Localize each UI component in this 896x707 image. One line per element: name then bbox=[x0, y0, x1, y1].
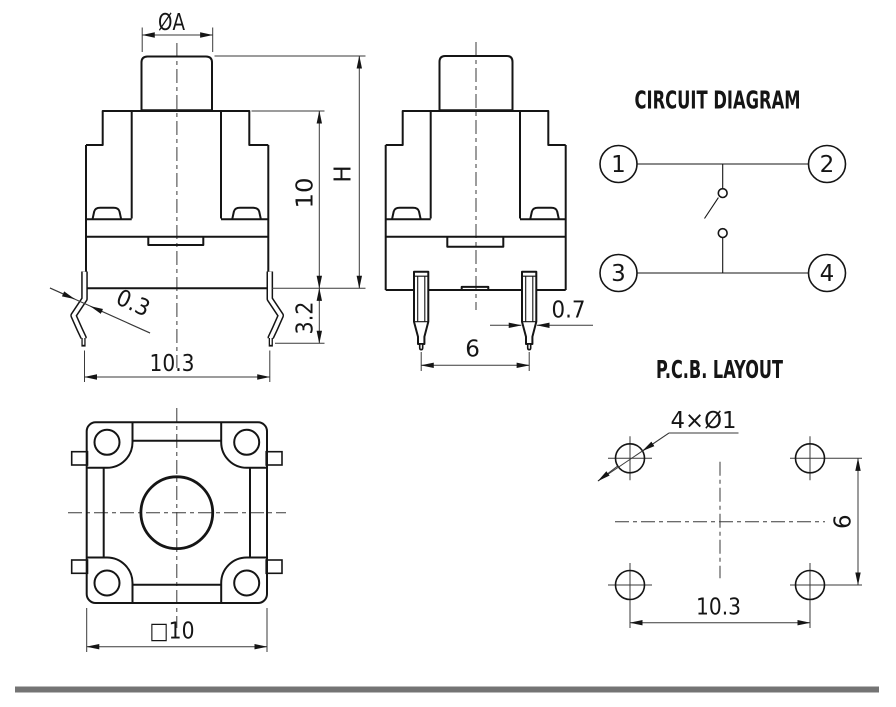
dim-pin-width: 0.7 bbox=[490, 298, 593, 326]
dim-hole-callout-label: 4×Ø1 bbox=[671, 408, 737, 434]
dim-pcb-vertical-pitch: 6 bbox=[831, 458, 859, 585]
dim-pin-width-label: 0.7 bbox=[552, 298, 586, 324]
footer-divider-bar bbox=[15, 687, 879, 693]
top-view: □10 bbox=[68, 408, 286, 652]
rivet-bottom-left bbox=[95, 571, 120, 596]
dim-lead-thickness: 0.3 bbox=[50, 285, 154, 333]
mount-tab-top-right bbox=[266, 452, 282, 465]
terminal-3-label: 3 bbox=[611, 261, 626, 287]
contact-bump-right-front bbox=[232, 208, 261, 220]
terminal-4-label: 4 bbox=[820, 261, 835, 287]
pcb-centerlines bbox=[615, 462, 825, 579]
dim-pcb-vertical-pitch-label: 6 bbox=[831, 514, 857, 529]
dim-total-height-label: H bbox=[331, 165, 357, 182]
dim-pin-pitch-label: 6 bbox=[465, 337, 480, 363]
dim-hole-callout: 4×Ø1 bbox=[598, 408, 739, 481]
contact-bump-left-front bbox=[93, 208, 122, 220]
terminal-1-label: 1 bbox=[611, 152, 626, 178]
pin-left bbox=[414, 272, 428, 350]
leg-left bbox=[74, 272, 85, 347]
dim-lead-length-label: 3.2 bbox=[293, 302, 319, 335]
contact-bump-left-side bbox=[392, 208, 421, 220]
switch-lever bbox=[705, 198, 719, 219]
front-view: ØA H 10 3.2 0.3 10.3 bbox=[50, 10, 366, 382]
base-notch-side bbox=[447, 237, 503, 247]
dim-body-size: □10 bbox=[87, 608, 267, 652]
housing-inner-walls-side bbox=[431, 111, 520, 219]
side-view: 0.7 6 bbox=[386, 42, 593, 371]
mount-tab-top-left bbox=[72, 452, 88, 465]
dim-body-height-label: 10 bbox=[293, 178, 319, 209]
switch-technical-drawing: ØA H 10 3.2 0.3 10.3 bbox=[0, 0, 896, 707]
switch-contact-upper bbox=[718, 189, 727, 198]
dim-pcb-horizontal-pitch: 10.3 bbox=[630, 595, 810, 623]
pcb-layout: P.C.B. LAYOUT 4×Ø1 6 10.3 bbox=[598, 355, 862, 628]
circuit-diagram-title: CIRCUIT DIAGRAM bbox=[635, 86, 801, 115]
dim-lead-span: 10.3 bbox=[85, 351, 270, 383]
dim-lead-thickness-label: 0.3 bbox=[112, 285, 154, 323]
contact-bump-right-side bbox=[530, 208, 559, 220]
circuit-diagram: CIRCUIT DIAGRAM 1 2 3 4 bbox=[600, 86, 846, 292]
pcb-layout-title: P.C.B. LAYOUT bbox=[656, 355, 783, 384]
rivet-bottom-right bbox=[234, 571, 259, 596]
dim-cap-diameter-label: ØA bbox=[158, 10, 185, 36]
switch-contact-lower bbox=[718, 229, 727, 238]
leg-right bbox=[270, 272, 281, 347]
mount-tab-bottom-left bbox=[72, 560, 88, 573]
mount-tab-bottom-right bbox=[266, 560, 282, 573]
dim-pcb-horizontal-pitch-label: 10.3 bbox=[696, 595, 741, 621]
circuit-wires bbox=[637, 164, 809, 273]
rivet-top-left bbox=[95, 430, 120, 455]
rivet-top-right bbox=[234, 430, 259, 455]
dim-lead-span-label: 10.3 bbox=[150, 351, 195, 377]
drawing-page: ØA H 10 3.2 0.3 10.3 bbox=[0, 0, 896, 707]
terminal-2-label: 2 bbox=[820, 152, 835, 178]
pin-right bbox=[522, 272, 536, 350]
dim-cap-diameter: ØA bbox=[142, 10, 213, 52]
dim-body-size-label: □10 bbox=[150, 619, 195, 645]
housing-inner-walls-front bbox=[132, 111, 221, 219]
dim-body-height: 10 bbox=[252, 111, 325, 288]
dim-pin-pitch: 6 bbox=[421, 337, 529, 372]
dim-total-height: H bbox=[215, 56, 366, 288]
base-notch-front bbox=[148, 237, 203, 245]
